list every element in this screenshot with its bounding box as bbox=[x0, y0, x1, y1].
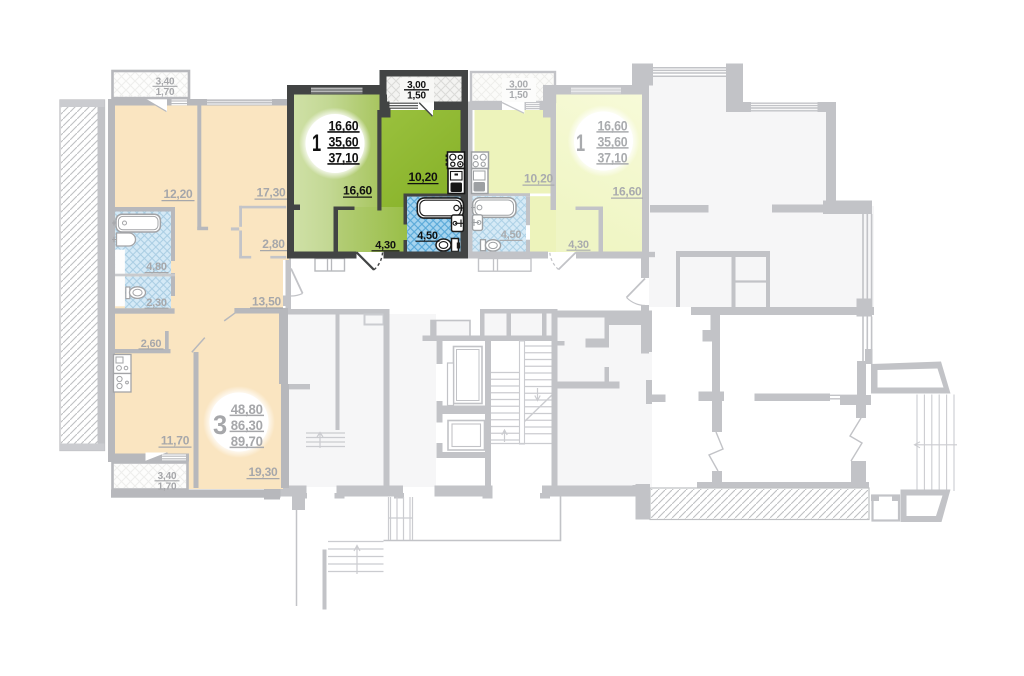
svg-text:35,60: 35,60 bbox=[329, 133, 359, 149]
svg-text:1,70: 1,70 bbox=[156, 87, 175, 98]
svg-text:1,70: 1,70 bbox=[158, 482, 177, 493]
svg-text:11,70: 11,70 bbox=[161, 434, 190, 448]
svg-text:4,30: 4,30 bbox=[568, 239, 589, 251]
svg-text:1,50: 1,50 bbox=[509, 90, 528, 101]
svg-text:3: 3 bbox=[213, 410, 227, 440]
svg-text:37,10: 37,10 bbox=[598, 149, 628, 165]
svg-text:4,50: 4,50 bbox=[417, 230, 438, 242]
svg-text:37,10: 37,10 bbox=[329, 149, 359, 165]
svg-text:1,50: 1,50 bbox=[407, 90, 426, 101]
svg-text:1: 1 bbox=[576, 130, 585, 157]
svg-text:2,60: 2,60 bbox=[141, 338, 162, 350]
svg-text:16,60: 16,60 bbox=[343, 184, 373, 198]
svg-text:10,20: 10,20 bbox=[408, 170, 438, 184]
svg-text:16,60: 16,60 bbox=[612, 185, 642, 199]
svg-text:13,50: 13,50 bbox=[252, 295, 282, 309]
svg-text:2,30: 2,30 bbox=[146, 297, 167, 309]
svg-text:48,80: 48,80 bbox=[231, 401, 263, 417]
svg-text:35,60: 35,60 bbox=[598, 133, 628, 149]
svg-text:10,20: 10,20 bbox=[524, 172, 554, 186]
svg-text:16,60: 16,60 bbox=[329, 117, 359, 133]
svg-text:4,80: 4,80 bbox=[146, 261, 167, 273]
svg-text:12,20: 12,20 bbox=[163, 187, 193, 201]
svg-text:1: 1 bbox=[312, 130, 321, 157]
svg-text:4,30: 4,30 bbox=[375, 239, 396, 251]
svg-text:16,60: 16,60 bbox=[598, 117, 628, 133]
svg-text:2,80: 2,80 bbox=[262, 237, 285, 251]
svg-text:17,30: 17,30 bbox=[256, 186, 286, 200]
svg-text:89,70: 89,70 bbox=[231, 433, 263, 449]
svg-text:19,30: 19,30 bbox=[248, 465, 278, 479]
svg-text:86,30: 86,30 bbox=[231, 417, 263, 433]
svg-text:4,50: 4,50 bbox=[501, 229, 522, 241]
